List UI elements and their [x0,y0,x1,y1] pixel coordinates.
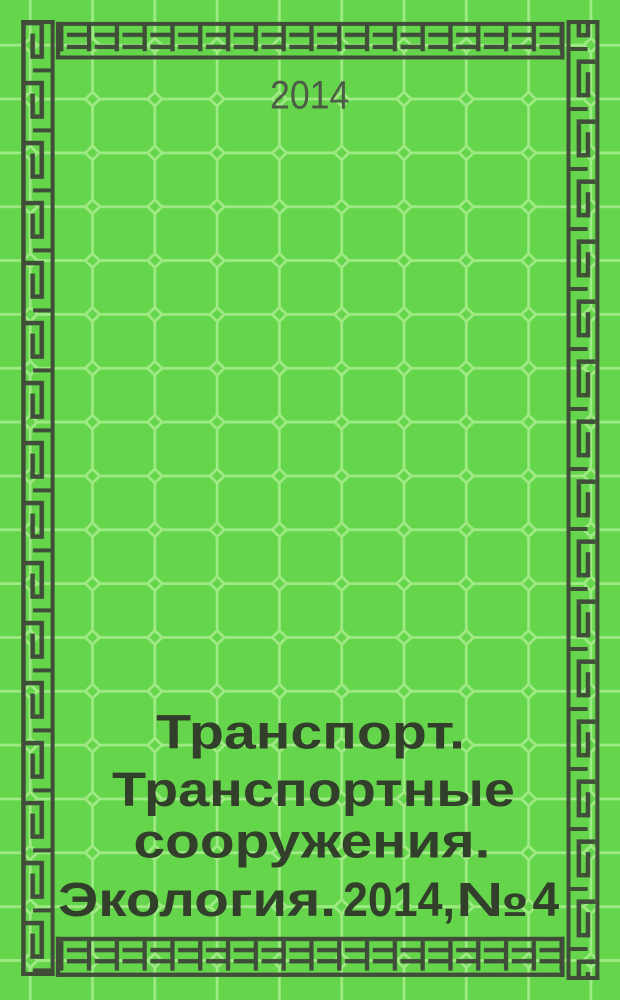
svg-text:4: 4 [533,874,560,927]
svg-text:Экология.: Экология. [58,874,336,927]
svg-text:Транспортные: Транспортные [112,764,515,817]
svg-text:Транспорт.: Транспорт. [156,707,465,760]
svg-text:сооружения.: сооружения. [134,816,491,869]
svg-text:№: № [456,874,529,927]
svg-text:2014: 2014 [270,74,350,118]
svg-text:2014,: 2014, [343,874,455,927]
